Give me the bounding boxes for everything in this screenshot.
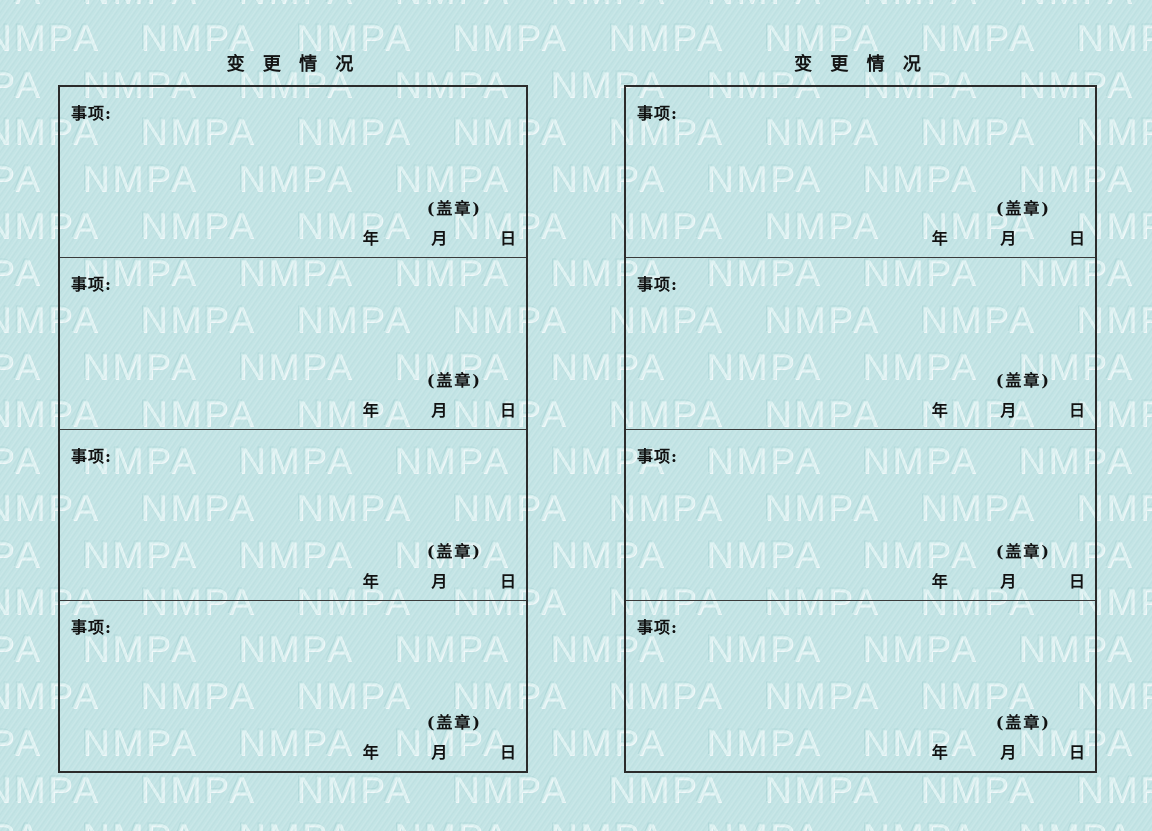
watermark-text: NMPA [140, 769, 256, 811]
change-record-section: 事项: (盖章) 年 月 日 [60, 87, 526, 257]
watermark-text: NMPA [0, 158, 42, 200]
seal-label: (盖章) [996, 538, 1051, 562]
date-row: 年 月 日 [932, 225, 1085, 249]
item-label: 事项: [71, 271, 112, 295]
watermark-text: NMPA [0, 628, 42, 670]
item-label: 事项: [71, 614, 112, 638]
watermark-text: NMPA [0, 440, 42, 482]
watermark-text: NMPA [394, 0, 510, 12]
change-record-box-left: 事项: (盖章) 年 月 日 事项: (盖章) 年 月 日 事项: (盖章) 年… [58, 85, 528, 773]
day-label: 日 [500, 229, 516, 248]
date-row: 年 月 日 [363, 397, 516, 421]
watermark-text: NMPA [0, 0, 42, 12]
item-label: 事项: [637, 614, 678, 638]
year-label: 年 [363, 572, 379, 591]
month-label: 月 [1000, 401, 1016, 420]
seal-label: (盖章) [427, 538, 482, 562]
watermark-text: NMPA [0, 346, 42, 388]
day-label: 日 [1069, 229, 1085, 248]
date-row: 年 月 日 [932, 739, 1085, 763]
year-label: 年 [932, 229, 948, 248]
page-title-left: 变 更 情 况 [58, 50, 528, 76]
month-label: 月 [1000, 743, 1016, 762]
watermark-text: NMPA [394, 816, 510, 831]
watermark-text: NMPA [1018, 0, 1134, 12]
seal-label: (盖章) [427, 367, 482, 391]
item-label: 事项: [71, 443, 112, 467]
watermark-text: NMPA [0, 64, 42, 106]
year-label: 年 [363, 743, 379, 762]
month-label: 月 [431, 572, 447, 591]
watermark-text: NMPA [238, 0, 354, 12]
month-label: 月 [1000, 572, 1016, 591]
day-label: 日 [1069, 572, 1085, 591]
change-record-section: 事项: (盖章) 年 月 日 [60, 600, 526, 771]
day-label: 日 [500, 743, 516, 762]
watermark-text: NMPA [0, 769, 100, 811]
change-record-section: 事项: (盖章) 年 月 日 [60, 429, 526, 600]
item-label: 事项: [71, 100, 112, 124]
seal-label: (盖章) [996, 709, 1051, 733]
month-label: 月 [431, 229, 447, 248]
watermark-text: NMPA [764, 769, 880, 811]
watermark-text: NMPA [82, 0, 198, 12]
day-label: 日 [500, 401, 516, 420]
watermark-text: NMPA [862, 816, 978, 831]
date-row: 年 月 日 [363, 739, 516, 763]
seal-label: (盖章) [996, 367, 1051, 391]
item-label: 事项: [637, 443, 678, 467]
watermark-text: NMPA [0, 722, 42, 764]
item-label: 事项: [637, 271, 678, 295]
watermark-text: NMPA [1076, 769, 1152, 811]
watermark-text: NMPA [608, 769, 724, 811]
watermark-text: NMPA [82, 816, 198, 831]
change-record-section: 事项: (盖章) 年 月 日 [626, 257, 1095, 428]
seal-label: (盖章) [427, 195, 482, 219]
day-label: 日 [1069, 401, 1085, 420]
watermark-text: NMPA [862, 0, 978, 12]
date-row: 年 月 日 [363, 225, 516, 249]
watermark-text: NMPA [238, 816, 354, 831]
change-record-box-right: 事项: (盖章) 年 月 日 事项: (盖章) 年 月 日 事项: (盖章) 年… [624, 85, 1097, 773]
watermark-text: NMPA [0, 252, 42, 294]
day-label: 日 [500, 572, 516, 591]
watermark-text: NMPA [920, 769, 1036, 811]
watermark-text: NMPA [0, 816, 42, 831]
month-label: 月 [431, 401, 447, 420]
watermark-text: NMPA [706, 0, 822, 12]
date-row: 年 月 日 [932, 397, 1085, 421]
page-title-right: 变 更 情 况 [624, 50, 1097, 76]
year-label: 年 [932, 572, 948, 591]
month-label: 月 [431, 743, 447, 762]
seal-label: (盖章) [427, 709, 482, 733]
watermark-text: NMPA [452, 769, 568, 811]
change-record-section: 事项: (盖章) 年 月 日 [626, 87, 1095, 257]
change-record-section: 事项: (盖章) 年 月 日 [60, 257, 526, 428]
year-label: 年 [932, 401, 948, 420]
change-record-section: 事项: (盖章) 年 月 日 [626, 600, 1095, 771]
date-row: 年 月 日 [363, 568, 516, 592]
day-label: 日 [1069, 743, 1085, 762]
watermark-text: NMPA [706, 816, 822, 831]
watermark-text: NMPA [0, 534, 42, 576]
item-label: 事项: [637, 100, 678, 124]
change-record-section: 事项: (盖章) 年 月 日 [626, 429, 1095, 600]
watermark-text: NMPA [550, 0, 666, 12]
watermark-text: NMPA [550, 816, 666, 831]
watermark-text: NMPA [1018, 816, 1134, 831]
date-row: 年 月 日 [932, 568, 1085, 592]
watermark-text: NMPA [296, 769, 412, 811]
seal-label: (盖章) [996, 195, 1051, 219]
certificate-spread: NMPANMPANMPANMPANMPANMPANMPANMPANMPANMPA… [0, 0, 1152, 831]
year-label: 年 [363, 229, 379, 248]
year-label: 年 [932, 743, 948, 762]
month-label: 月 [1000, 229, 1016, 248]
year-label: 年 [363, 401, 379, 420]
